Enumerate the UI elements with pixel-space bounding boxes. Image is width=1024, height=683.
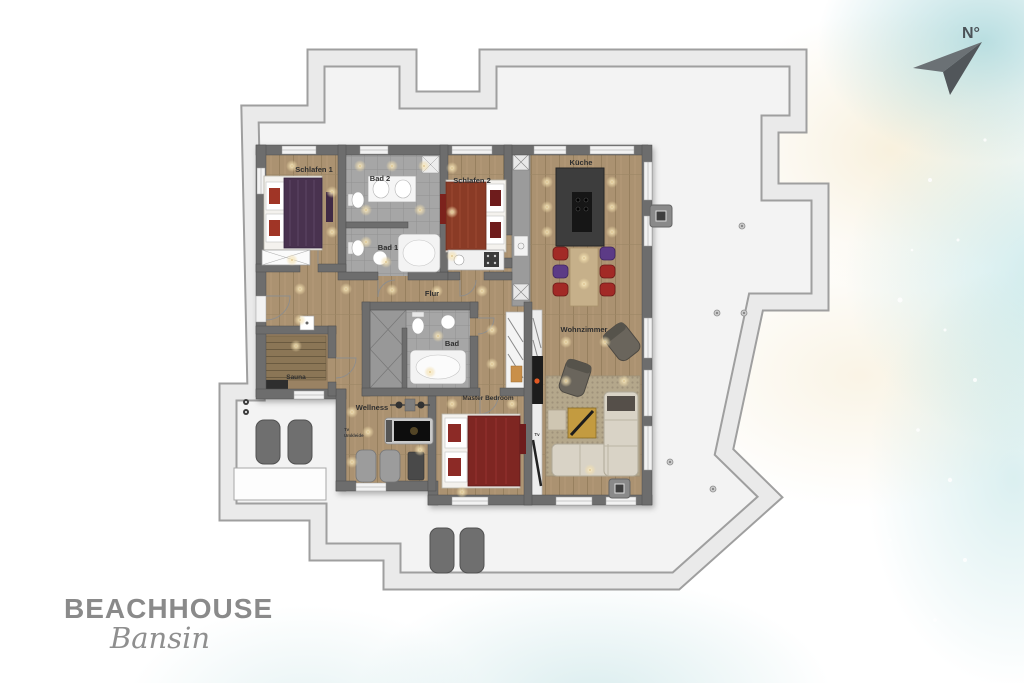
kitchen-counter [512, 152, 530, 306]
room-label-schlafen1: Schlafen 1 [295, 165, 333, 174]
room-label-tv-wellness: Tv [344, 427, 350, 432]
room-label-umkleide: Umkleide [344, 433, 364, 438]
window [534, 146, 566, 154]
cooktop [572, 192, 592, 232]
window [590, 146, 634, 154]
terrace-column [650, 205, 672, 227]
bathtub [398, 234, 440, 272]
stool [600, 247, 615, 260]
toilet [412, 312, 424, 334]
brand-location: Bansin [64, 622, 256, 654]
brand-name: BEACHHOUSE [64, 594, 256, 624]
entry-door [256, 296, 266, 322]
lounger [256, 420, 280, 464]
kitchen-sink [514, 236, 528, 256]
lounger [430, 528, 454, 573]
window [644, 426, 652, 470]
room-label-sauna: Sauna [286, 374, 306, 381]
bed-bench [440, 194, 446, 224]
wardrobe [370, 310, 406, 388]
terrace-column [609, 479, 630, 498]
watercolor-speckles [889, 138, 987, 621]
terrace-door [294, 391, 324, 399]
hall-shelf-unit [506, 312, 526, 390]
side-table [548, 410, 566, 430]
floor-plan: Schlafen 1 Bad 2 Bad 1 Schlafen 2 Küche … [0, 0, 1024, 683]
window [644, 162, 652, 200]
bed-bench [520, 424, 526, 454]
bed-master [442, 414, 526, 488]
treadmill [385, 418, 433, 444]
room-label-bad1: Bad 1 [378, 243, 398, 252]
terrace-door [356, 483, 386, 491]
room-label-kueche: Küche [570, 158, 593, 167]
room-label-bad: Bad [445, 339, 460, 348]
lounger [288, 420, 312, 464]
gym-mats [356, 450, 424, 482]
toilet [348, 192, 364, 208]
room-label-wohnzimmer: Wohnzimmer [561, 325, 608, 334]
room-label-schlafen2: Schlafen 2 [453, 176, 491, 185]
room-label-master-bedroom: Master Bedroom [462, 395, 514, 402]
kitchen-island [556, 168, 604, 246]
tv-media-wall [531, 310, 543, 502]
window [360, 146, 388, 154]
compass-north-label: N° [962, 25, 980, 42]
coffee-table [568, 408, 596, 438]
stool [553, 265, 568, 278]
window [644, 370, 652, 416]
window [282, 146, 316, 154]
washbasin [441, 315, 455, 329]
window [644, 318, 652, 358]
stool [600, 265, 615, 278]
window [452, 146, 492, 154]
bathtub [410, 350, 466, 384]
stool [553, 283, 568, 296]
room-label-tv-living: Tv [534, 432, 540, 437]
stool [553, 247, 568, 260]
window [556, 497, 592, 505]
sofa-throw [607, 396, 635, 411]
brand-logo: BEACHHOUSE Bansin [64, 594, 256, 654]
stool [600, 283, 615, 296]
lounger [460, 528, 484, 573]
window [452, 497, 488, 505]
room-label-flur: Flur [425, 289, 439, 298]
terrace-table [234, 468, 326, 500]
room-label-bad2: Bad 2 [370, 174, 390, 183]
room-label-wellness: Wellness [356, 403, 388, 412]
floor-plan-page: Schlafen 1 Bad 2 Bad 1 Schlafen 2 Küche … [0, 0, 1024, 683]
dresser [262, 250, 310, 265]
compass: N° [913, 25, 982, 95]
